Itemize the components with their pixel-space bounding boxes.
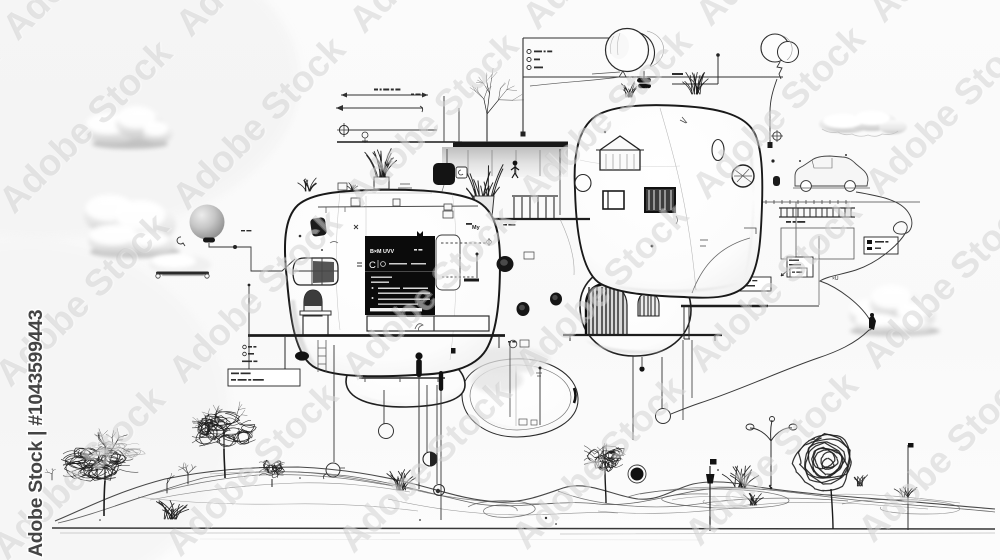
svg-text:C: C <box>369 260 376 271</box>
svg-text:×U: ×U <box>832 276 839 282</box>
svg-text:B×M UVV: B×M UVV <box>370 249 395 255</box>
svg-text:Adobe Stock | #1043599443: Adobe Stock | #1043599443 <box>25 309 47 557</box>
